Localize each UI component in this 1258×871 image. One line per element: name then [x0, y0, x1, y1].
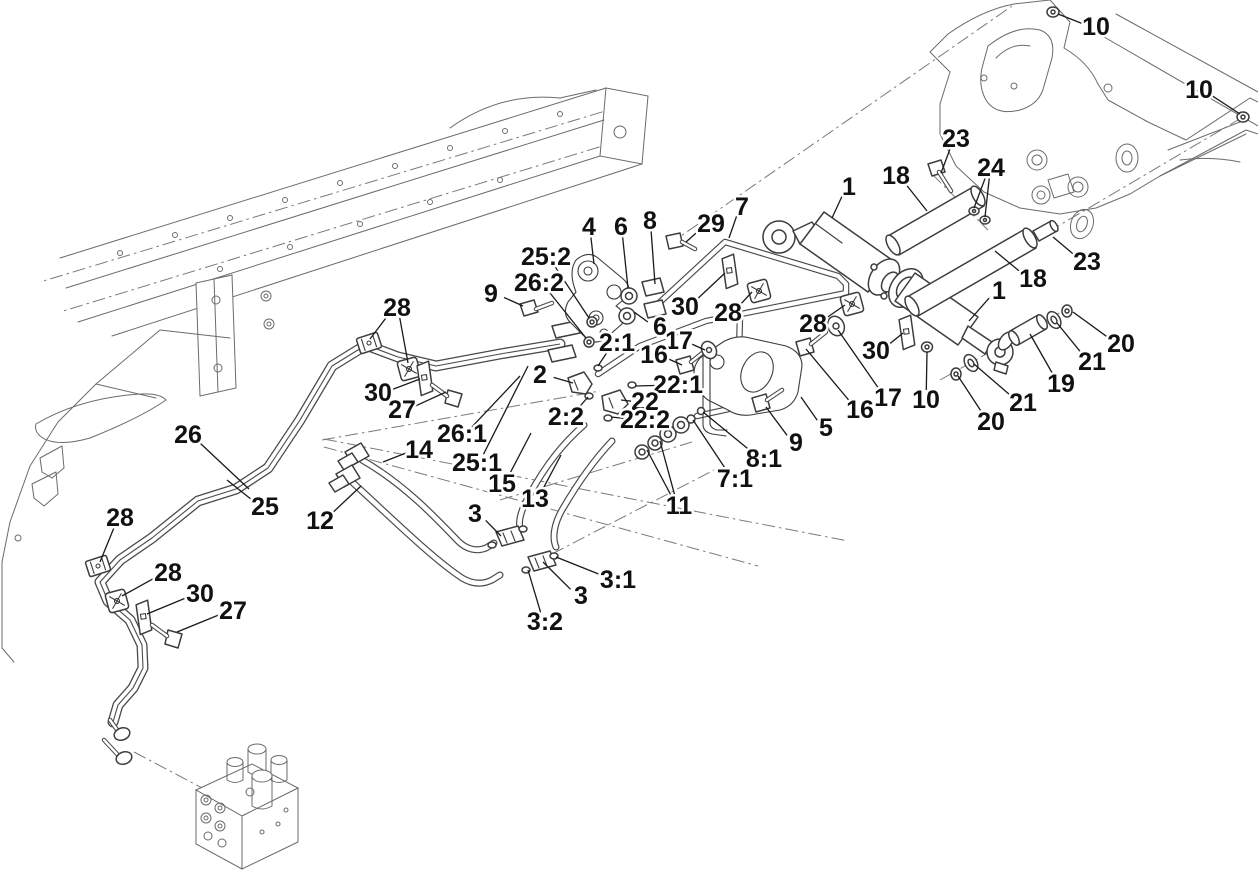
leader-line [504, 298, 523, 306]
lift-cylinder-upper [763, 212, 906, 301]
callout-label: 14 [405, 436, 433, 464]
leader-line [696, 273, 725, 301]
callout-label: 4 [582, 213, 596, 241]
callout-label: 3 [574, 582, 588, 610]
callout-2: 2 [533, 361, 573, 389]
callout-label: 13 [521, 485, 549, 513]
callout-label: 26:1 [437, 420, 487, 448]
leader-line [543, 562, 571, 589]
callout-28: 28 [714, 292, 752, 327]
callout-3: 3 [468, 500, 501, 536]
callout-3-2: 3:2 [527, 570, 563, 636]
callout-8: 8 [643, 207, 657, 284]
callout-label: 3:1 [600, 566, 636, 594]
parts-diagram-canvas: 101023241812318120211921201017163028598:… [0, 0, 1258, 871]
callout-3: 3 [543, 562, 588, 610]
callout-label: 29 [697, 210, 725, 238]
callout-label: 1 [992, 277, 1006, 305]
leader-line [651, 231, 655, 284]
callout-label: 3:2 [527, 608, 563, 636]
leader-line [177, 615, 220, 632]
callout-25: 25 [227, 480, 279, 521]
exploded-parts-diagram: 101023241812318120211921201017163028598:… [0, 0, 1258, 871]
callout-label: 21 [1078, 348, 1106, 376]
callout-label: 8 [643, 207, 657, 235]
callout-label: 30 [862, 337, 890, 365]
callout-label: 25 [251, 493, 279, 521]
callout-label: 10 [1082, 13, 1110, 41]
callout-label: 16 [846, 396, 874, 424]
callout-label: 10 [912, 386, 940, 414]
callout-30: 30 [862, 333, 903, 365]
callout-label: 28 [714, 299, 742, 327]
callout-label: 2:2 [548, 403, 584, 431]
callout-label: 27 [219, 597, 247, 625]
callout-label: 2:1 [599, 329, 635, 357]
callout-label: 26:2 [514, 269, 564, 297]
callout-10: 10 [912, 352, 940, 414]
callout-29: 29 [686, 210, 725, 242]
callout-7-1: 7:1 [693, 420, 753, 493]
callout-label: 25:2 [521, 243, 571, 271]
callout-label: 30 [186, 580, 214, 608]
callout-10: 10 [1185, 76, 1240, 114]
callout-label: 23 [942, 125, 970, 153]
leader-line [198, 442, 249, 489]
callout-22-2: 22:2 [611, 406, 670, 434]
callout-label: 9 [484, 280, 498, 308]
callout-label: 26 [174, 421, 202, 449]
callout-28: 28 [122, 559, 182, 596]
callout-label: 21 [1009, 389, 1037, 417]
callout-3-1: 3:1 [556, 557, 636, 594]
callout-10: 10 [1058, 13, 1110, 41]
callout-label: 5 [819, 414, 833, 442]
callout-label: 15 [488, 470, 516, 498]
callout-7: 7 [729, 193, 749, 238]
leader-line [634, 312, 648, 322]
leader-line [1073, 312, 1109, 338]
leader-line [122, 577, 155, 596]
callout-14: 14 [383, 436, 433, 464]
callout-label: 7:1 [717, 465, 753, 493]
leader-line [985, 178, 989, 217]
callout-label: 12 [306, 507, 334, 535]
callout-label: 10 [1185, 76, 1213, 104]
callout-label: 20 [1107, 330, 1135, 358]
callout-label: 20 [977, 408, 1005, 436]
leader-line [147, 598, 187, 614]
callout-1: 1 [832, 173, 856, 218]
callout-label: 22:2 [620, 406, 670, 434]
callout-label: 17 [874, 384, 902, 412]
leader-line [1211, 95, 1240, 114]
callout-label: 30 [671, 293, 699, 321]
callout-label: 24 [977, 154, 1005, 182]
leader-line [888, 333, 903, 345]
callout-label: 16 [640, 341, 668, 369]
callout-5: 5 [801, 397, 833, 442]
callout-label: 23 [1073, 248, 1101, 276]
leader-line [969, 298, 989, 321]
leader-line [509, 433, 531, 475]
callout-label: 7 [735, 193, 749, 221]
callout-26: 26 [174, 421, 249, 489]
callout-label: 17 [665, 327, 693, 355]
leader-line [806, 349, 851, 403]
leader-line [926, 352, 927, 390]
callout-label: 28 [106, 504, 134, 532]
callout-17: 17 [665, 327, 705, 355]
callout-2-2: 2:2 [548, 397, 588, 431]
callout-12: 12 [306, 486, 361, 535]
callout-label: 18 [1019, 265, 1047, 293]
callout-label: 28 [383, 294, 411, 322]
callout-label: 18 [882, 162, 910, 190]
callout-label: 9 [789, 429, 803, 457]
leader-line [832, 196, 842, 218]
callout-11: 11 [647, 441, 692, 520]
callout-label: 27 [388, 396, 416, 424]
leader-line [556, 557, 605, 577]
leader-line [801, 397, 817, 420]
callout-label: 19 [1047, 370, 1075, 398]
callout-label: 1 [842, 173, 856, 201]
callout-label: 11 [666, 492, 693, 520]
callout-label: 6 [614, 213, 628, 241]
small-hardware [152, 7, 1249, 648]
leader-line [486, 520, 501, 536]
callout-label: 28 [799, 310, 827, 338]
callout-23: 23 [1053, 237, 1101, 276]
leader-line [766, 407, 787, 435]
callout-label: 3 [468, 500, 482, 528]
callout-label: 2 [533, 361, 547, 389]
pivot-tubes [883, 184, 1059, 318]
callout-18: 18 [882, 162, 927, 211]
callout-label: 22:1 [653, 371, 703, 399]
leader-line [383, 453, 406, 462]
callout-label: 28 [154, 559, 182, 587]
leader-line [528, 570, 541, 612]
hydraulic-valve-block [196, 744, 298, 869]
leader-line [415, 392, 446, 406]
callout-8-1: 8:1 [703, 412, 782, 473]
